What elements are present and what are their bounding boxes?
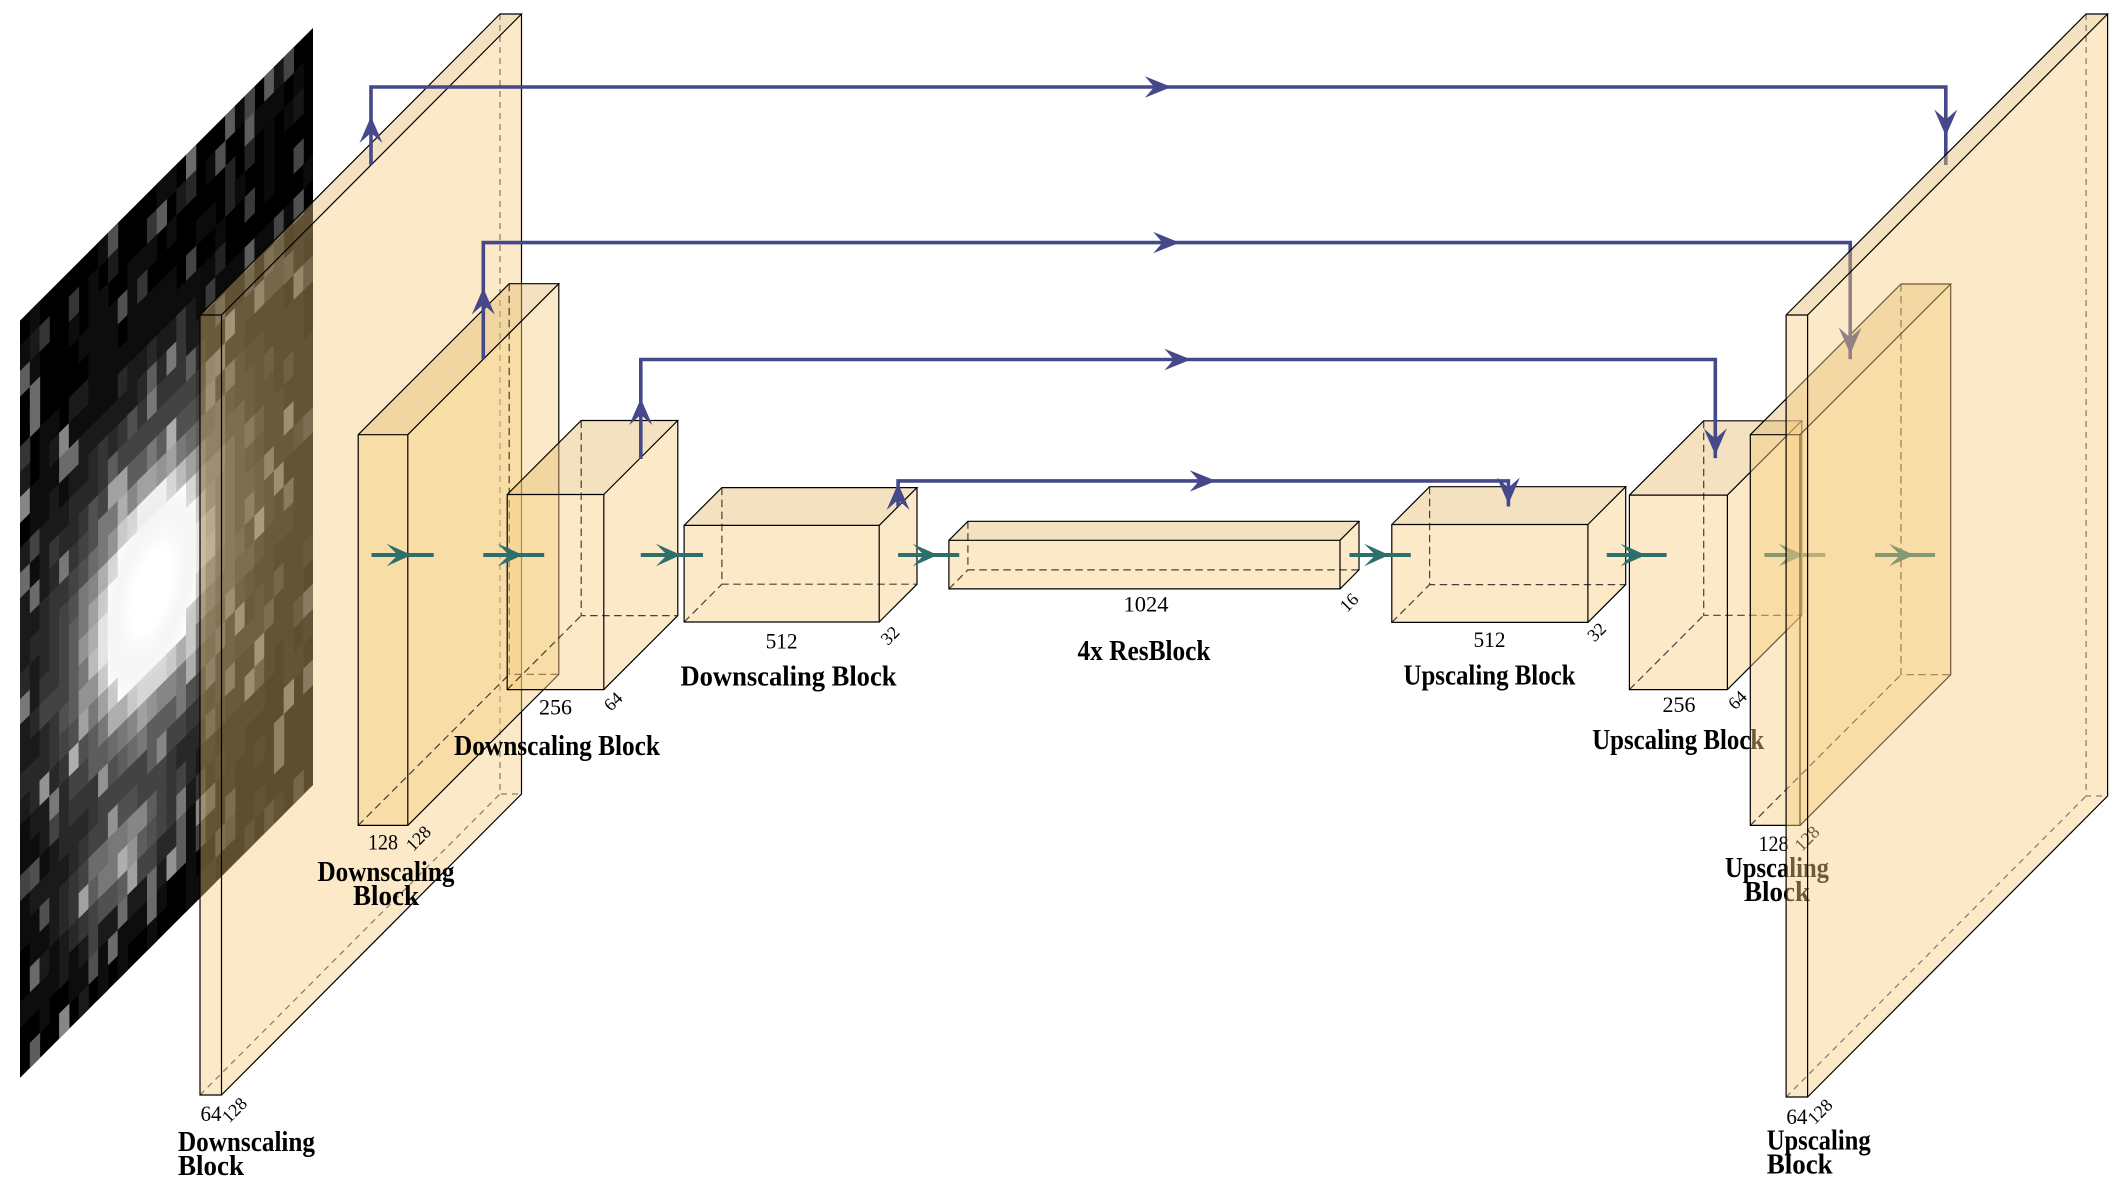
svg-text:128: 128: [368, 829, 398, 854]
svg-text:Upscaling Block: Upscaling Block: [1404, 659, 1577, 691]
svg-text:Block: Block: [1767, 1148, 1834, 1180]
svg-text:1024: 1024: [1124, 592, 1169, 617]
svg-text:512: 512: [1474, 627, 1506, 652]
svg-text:256: 256: [1663, 692, 1696, 717]
svg-text:Upscaling Block: Upscaling Block: [1592, 724, 1765, 756]
svg-text:256: 256: [539, 694, 572, 719]
svg-text:Downscaling Block: Downscaling Block: [454, 730, 661, 762]
svg-text:Block: Block: [178, 1150, 245, 1182]
svg-text:512: 512: [766, 628, 798, 653]
svg-text:Downscaling Block: Downscaling Block: [681, 660, 898, 692]
svg-text:4x ResBlock: 4x ResBlock: [1078, 635, 1212, 667]
svg-text:Block: Block: [353, 880, 420, 912]
